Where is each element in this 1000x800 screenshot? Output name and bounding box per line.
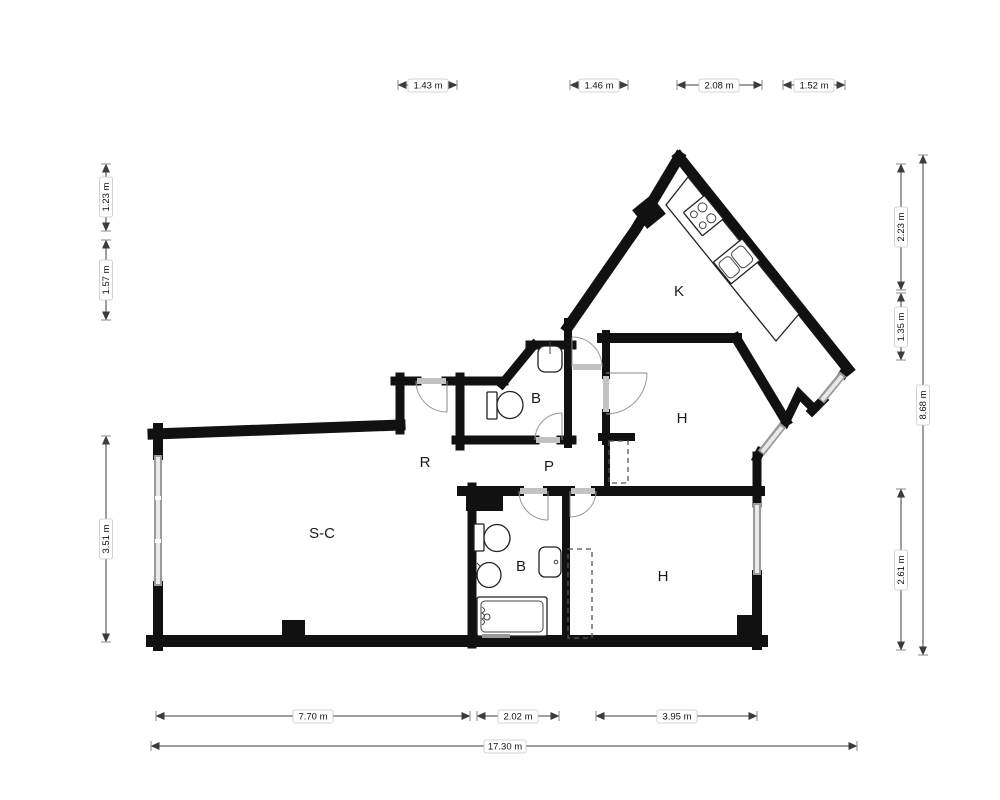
entry-door [416,381,447,412]
room-label-kitchen: K [674,283,684,300]
interior-walls [282,195,786,644]
svg-text:17.30 m: 17.30 m [488,742,522,753]
room-label-living-dining: S-C [309,525,335,542]
dim-top-1: 1.43 m [398,79,457,92]
dim-right-2: 1.35 m [895,293,908,360]
dim-left-3: 3.51 m [100,436,113,642]
toilet-icon [474,524,510,552]
svg-text:1.35 m: 1.35 m [896,312,907,341]
svg-text:1.57 m: 1.57 m [101,265,112,294]
toilet-icon [487,392,523,420]
floor-plan-drawing: K B H R P S-C B H 1.43 m 1.46 m 2.08 m [0,0,1000,800]
svg-text:2.02 m: 2.02 m [503,712,532,723]
dim-top-2: 1.46 m [570,79,628,92]
bidet-icon [477,563,501,588]
svg-text:1.23 m: 1.23 m [101,182,112,211]
column [282,620,305,641]
dim-bottom-3: 3.95 m [596,710,757,723]
svg-text:3.51 m: 3.51 m [101,524,112,553]
room-label-bathroom-upper: B [531,390,541,407]
window-living-room [155,455,161,586]
washbasin-icon [539,547,561,577]
svg-text:1.46 m: 1.46 m [584,81,613,92]
floor-plan-page: K B H R P S-C B H 1.43 m 1.46 m 2.08 m [0,0,1000,800]
svg-text:8.68 m: 8.68 m [918,390,929,419]
svg-text:1.43 m: 1.43 m [413,81,442,92]
room-label-bedroom-lower: H [658,568,669,585]
wardrobe-closet [609,441,628,483]
dim-left-1: 1.23 m [100,164,113,231]
dim-bottom-total: 17.30 m [151,740,857,753]
wardrobe-closet [568,549,592,638]
dim-right-1: 2.23 m [895,164,908,290]
room-label-corridor: P [544,458,554,475]
svg-text:3.95 m: 3.95 m [662,712,691,723]
dim-left-2: 1.57 m [100,240,113,320]
room-label-bedroom-upper: H [677,410,688,427]
window-notch [761,425,783,453]
svg-text:2.08 m: 2.08 m [704,81,733,92]
room-label-bathroom-lower: B [516,558,526,575]
dim-top-4: 1.52 m [783,79,845,92]
column [737,615,758,641]
door-bedroom-upper [606,373,647,414]
svg-text:2.23 m: 2.23 m [896,212,907,241]
svg-text:2.61 m: 2.61 m [896,555,907,584]
svg-text:1.52 m: 1.52 m [799,81,828,92]
dim-right-3: 2.61 m [895,489,908,650]
dim-bottom-2: 2.02 m [477,710,559,723]
dim-bottom-1: 7.70 m [156,710,470,723]
window-kitchen-se [821,374,843,401]
bathtub-icon [477,597,547,636]
svg-text:7.70 m: 7.70 m [298,712,327,723]
room-label-entry-hall: R [420,454,431,471]
dim-right-total: 8.68 m [917,155,930,655]
dim-top-3: 2.08 m [677,79,762,92]
